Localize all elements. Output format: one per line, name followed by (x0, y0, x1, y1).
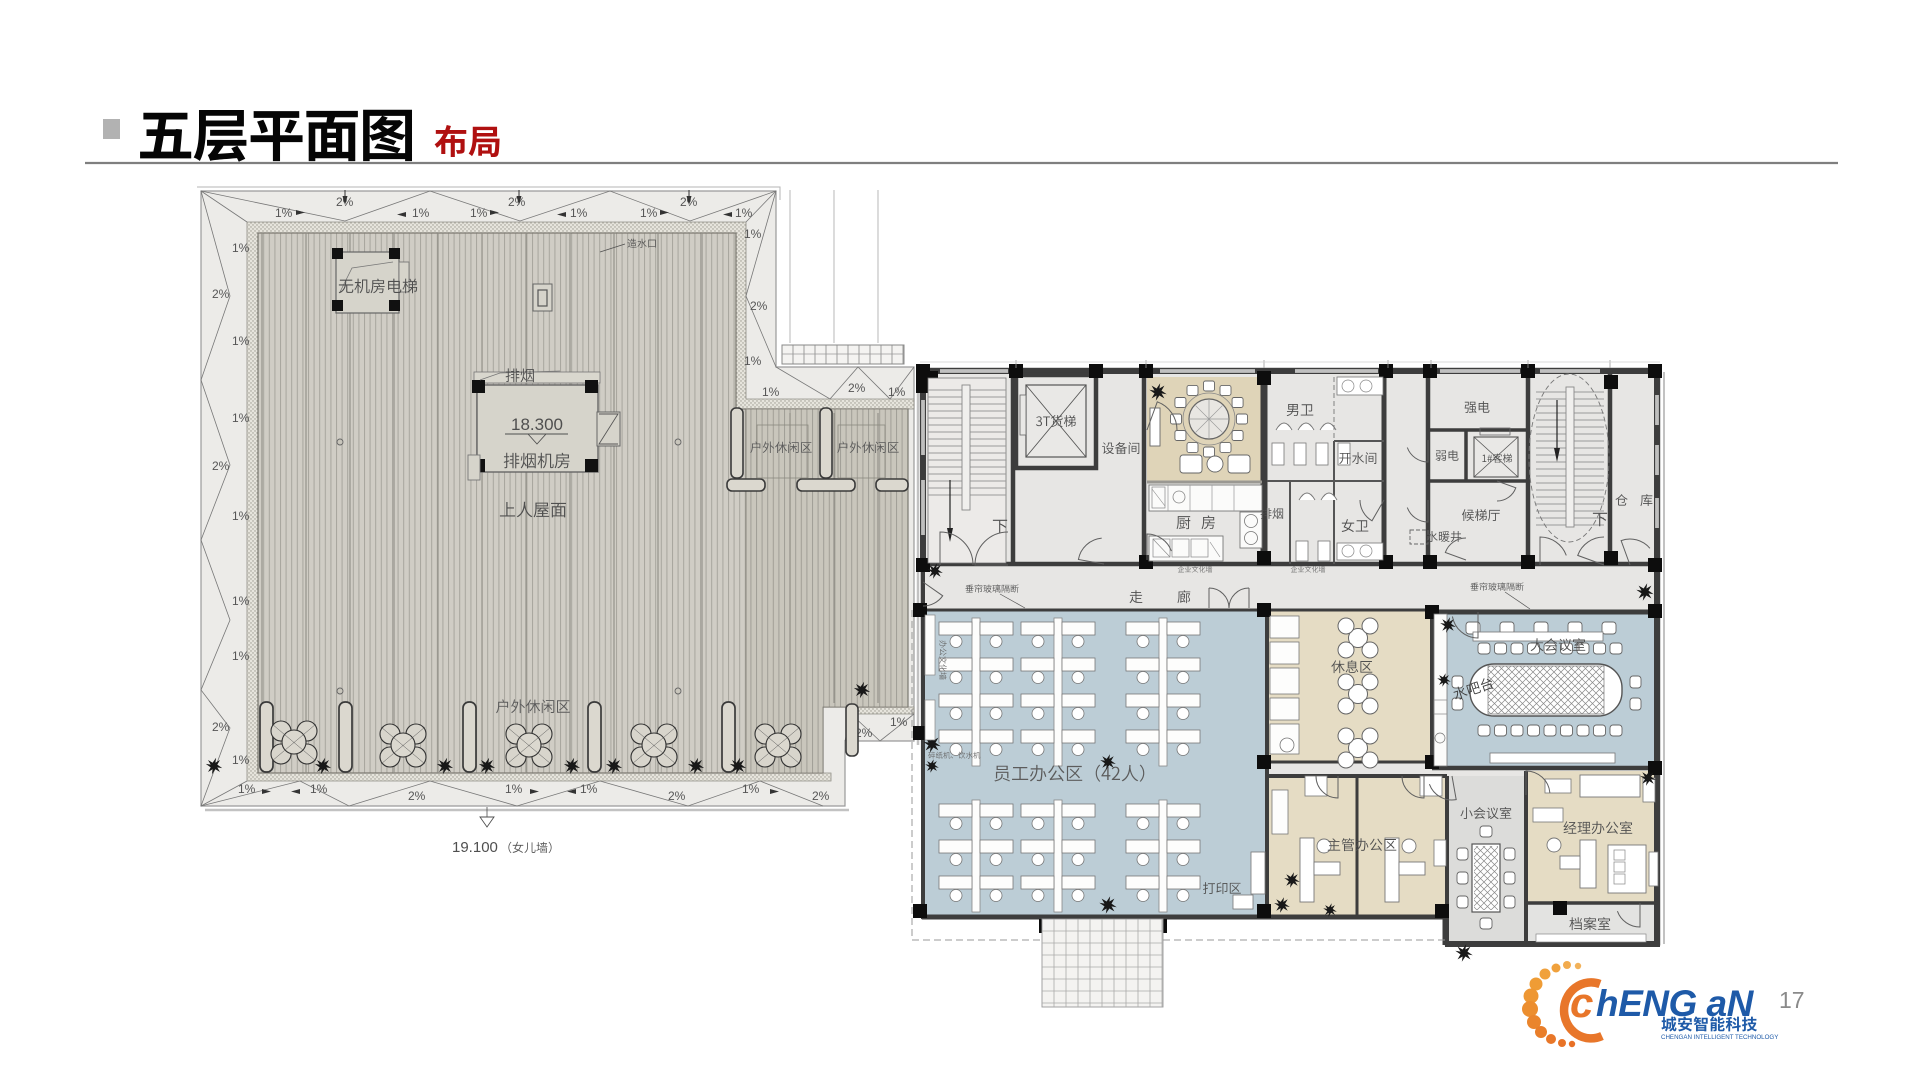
svg-text:1%: 1% (238, 782, 256, 796)
svg-text:2%: 2% (848, 381, 866, 395)
svg-text:2%: 2% (212, 720, 230, 734)
svg-text:18.300: 18.300 (511, 415, 563, 434)
svg-text:1%: 1% (232, 594, 250, 608)
svg-text:CHENGAN INTELLIGENT TECHNOLOGY: CHENGAN INTELLIGENT TECHNOLOGY (1661, 1034, 1778, 1041)
svg-text:2%: 2% (212, 287, 230, 301)
svg-text:19.100: 19.100 (452, 839, 498, 856)
svg-text:2%: 2% (668, 789, 686, 803)
svg-text:1%: 1% (744, 227, 762, 241)
svg-text:1%: 1% (232, 411, 250, 425)
svg-text:2%: 2% (408, 789, 426, 803)
svg-text:1%: 1% (275, 206, 293, 220)
svg-text:1%: 1% (640, 206, 658, 220)
svg-text:1%: 1% (505, 782, 523, 796)
svg-text:17: 17 (1779, 987, 1805, 1013)
svg-text:1%: 1% (232, 649, 250, 663)
svg-text:1%: 1% (744, 354, 762, 368)
svg-text:1%: 1% (232, 753, 250, 767)
svg-text:1%: 1% (742, 782, 760, 796)
svg-text:1%: 1% (762, 385, 780, 399)
svg-text:1%: 1% (888, 385, 906, 399)
svg-text:2%: 2% (750, 299, 768, 313)
svg-text:1%: 1% (735, 206, 753, 220)
svg-text:1%: 1% (580, 782, 598, 796)
svg-text:1%: 1% (232, 334, 250, 348)
svg-text:1%: 1% (232, 241, 250, 255)
svg-text:1%: 1% (232, 509, 250, 523)
svg-text:c: c (1570, 979, 1593, 1026)
svg-text:2%: 2% (812, 789, 830, 803)
svg-text:1%: 1% (470, 206, 488, 220)
svg-text:1%: 1% (310, 782, 328, 796)
svg-text:1%: 1% (890, 715, 908, 729)
svg-text:1%: 1% (412, 206, 430, 220)
svg-text:2%: 2% (212, 459, 230, 473)
svg-text:1%: 1% (570, 206, 588, 220)
